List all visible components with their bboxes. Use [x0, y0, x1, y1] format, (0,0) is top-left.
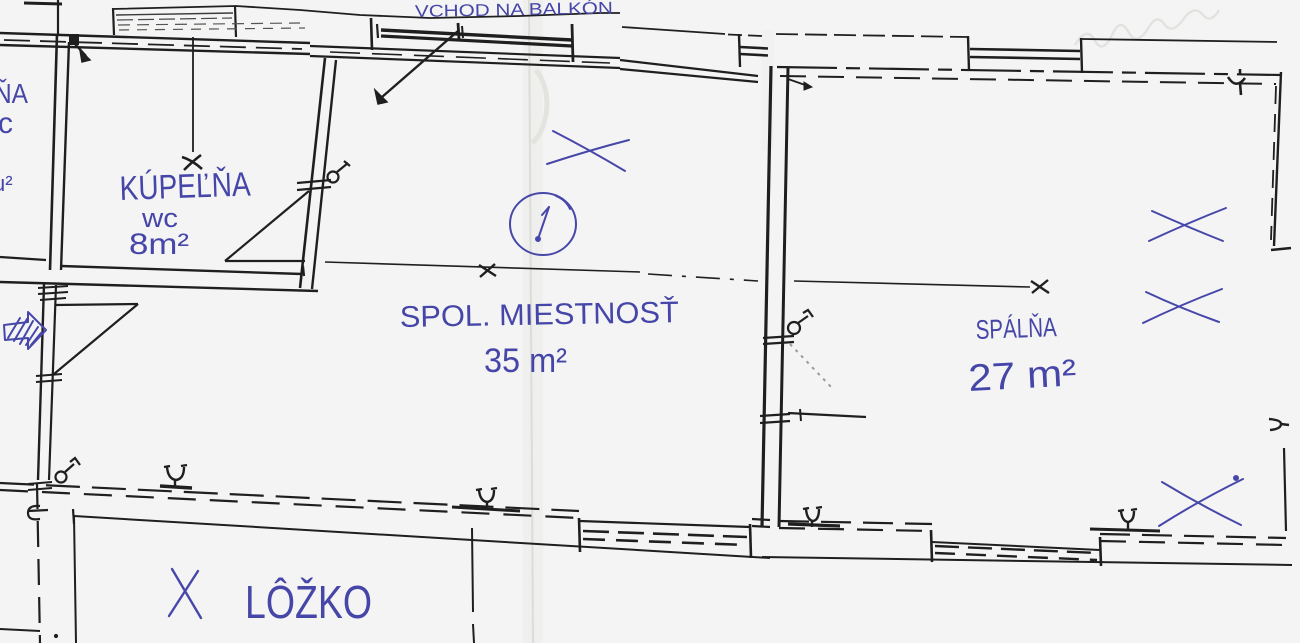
svg-text:KÚPEĽŇA: KÚPEĽŇA [119, 165, 252, 208]
svg-text:SPOL. MIESTNOSŤ: SPOL. MIESTNOSŤ [400, 296, 680, 334]
svg-text:ŇA: ŇA [0, 78, 28, 109]
svg-text:SPÁLŇA: SPÁLŇA [975, 311, 1057, 345]
svg-text:27 m²: 27 m² [967, 352, 1077, 400]
svg-text:LÔŽKO: LÔŽKO [245, 576, 372, 628]
svg-text:VCHOD NA BALKÓN: VCHOD NA BALKÓN [415, 0, 613, 21]
svg-text:c: c [0, 107, 13, 140]
svg-text:35 m²: 35 m² [484, 342, 567, 380]
svg-text:8m²: 8m² [129, 228, 189, 261]
svg-text:u²: u² [0, 171, 13, 196]
